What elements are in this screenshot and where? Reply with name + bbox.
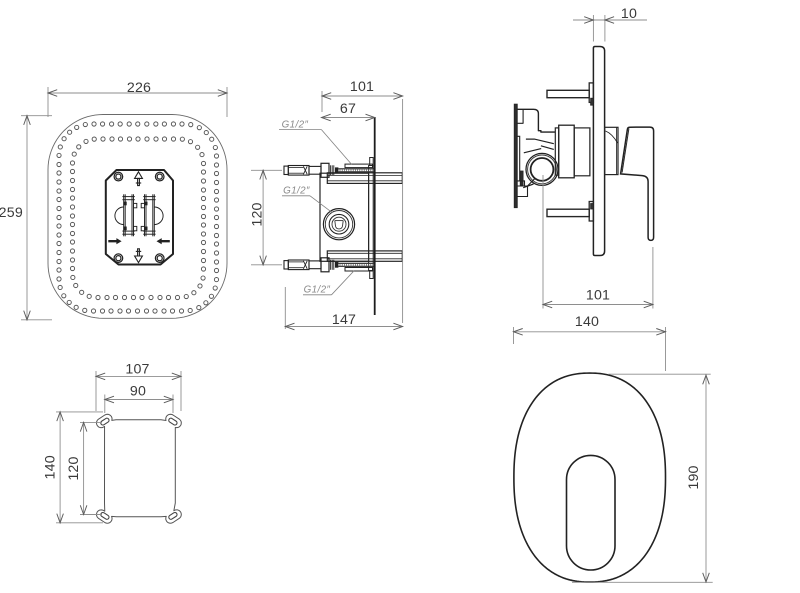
svg-text:101: 101 [350,79,374,95]
svg-text:90: 90 [130,383,146,399]
svg-text:G1/2″: G1/2″ [283,186,310,197]
svg-text:120: 120 [66,456,82,480]
svg-text:190: 190 [686,465,702,489]
svg-text:226: 226 [127,80,151,96]
svg-text:G1/2″: G1/2″ [282,120,309,131]
svg-text:101: 101 [586,287,610,303]
svg-text:120: 120 [249,202,265,226]
svg-text:67: 67 [340,101,356,117]
svg-text:140: 140 [575,314,599,330]
svg-text:259: 259 [0,205,23,221]
svg-text:107: 107 [125,362,149,378]
svg-text:G1/2″: G1/2″ [304,285,331,296]
svg-text:140: 140 [42,455,58,479]
svg-text:147: 147 [332,312,356,328]
svg-text:10: 10 [621,6,637,22]
